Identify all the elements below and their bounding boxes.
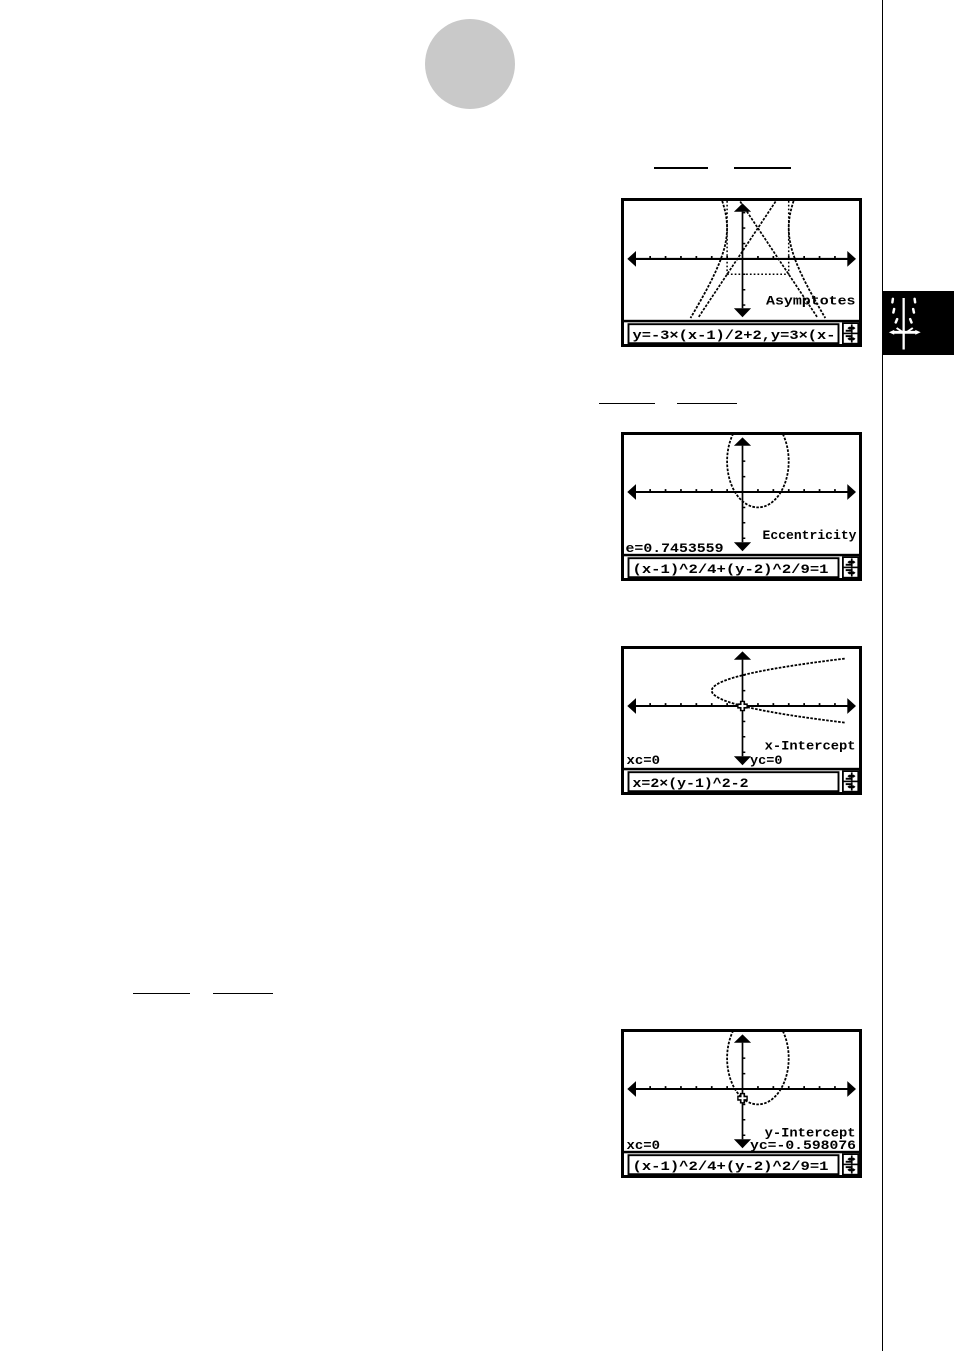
svg-text:(x-1)^2/4+(y-2)^2/9=1: (x-1)^2/4+(y-2)^2/9=1: [633, 562, 829, 577]
svg-text:Asymptotes: Asymptotes: [766, 293, 856, 308]
svg-text:(x-1)^2/4+(y-2)^2/9=1: (x-1)^2/4+(y-2)^2/9=1: [633, 1159, 829, 1174]
svg-text:x=2×(y-1)^2-2: x=2×(y-1)^2-2: [633, 776, 749, 791]
svg-text:x-Intercept: x-Intercept: [765, 738, 856, 753]
svg-text:yc=-0.598076: yc=-0.598076: [750, 1138, 856, 1153]
svg-text:xc=0: xc=0: [627, 1138, 661, 1153]
svg-text:xc=0: xc=0: [627, 753, 661, 768]
svg-text:yc=0: yc=0: [750, 753, 783, 768]
svg-text:Eccentricity: Eccentricity: [763, 528, 857, 543]
svg-text:y=-3×(x-1)/2+2,y=3×(x-: y=-3×(x-1)/2+2,y=3×(x-: [633, 328, 836, 343]
svg-text:e=0.7453559: e=0.7453559: [626, 541, 724, 556]
